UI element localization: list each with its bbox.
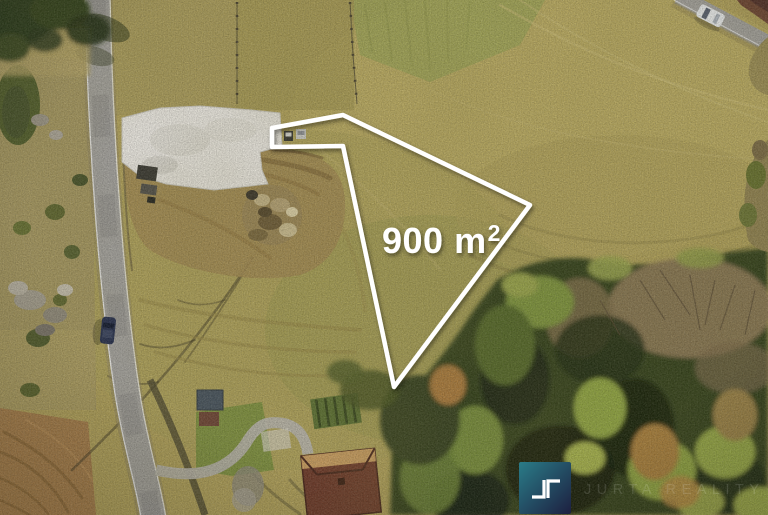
area-label: 900 m2 <box>382 220 501 261</box>
watermark-text: JURTA REALITY <box>584 482 765 498</box>
aerial-listing-image: 900 m2 JURTA REALITY <box>0 0 768 515</box>
